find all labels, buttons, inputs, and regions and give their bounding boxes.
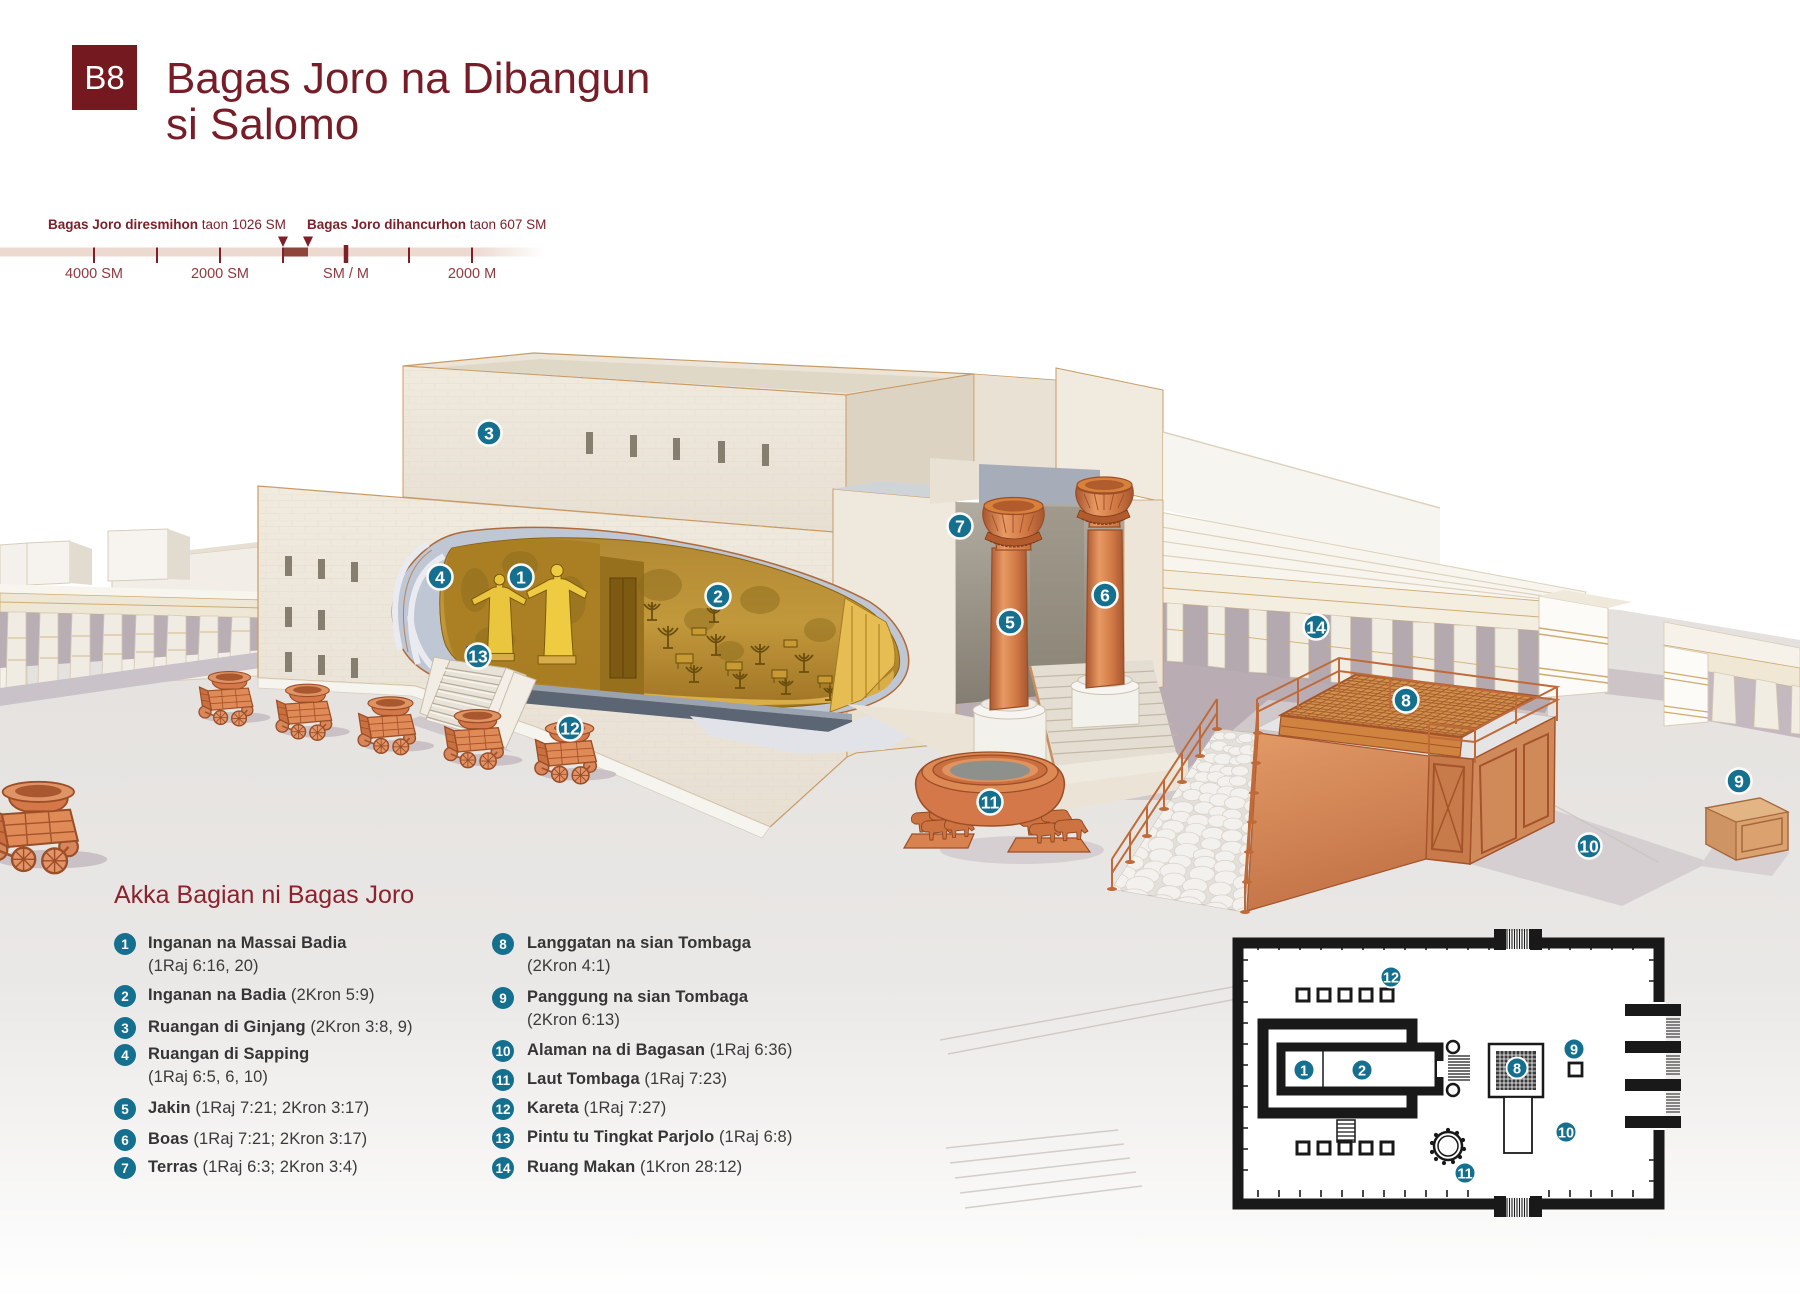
svg-text:1: 1 — [1300, 1064, 1308, 1080]
svg-text:4: 4 — [435, 568, 445, 588]
svg-text:12: 12 — [560, 719, 580, 739]
svg-text:8: 8 — [1401, 691, 1411, 711]
svg-text:1: 1 — [516, 568, 526, 588]
svg-text:9: 9 — [1570, 1043, 1578, 1059]
svg-text:13: 13 — [468, 647, 488, 667]
svg-text:9: 9 — [1734, 772, 1744, 792]
svg-text:10: 10 — [1579, 837, 1599, 857]
svg-text:10: 10 — [1558, 1126, 1574, 1142]
svg-text:2: 2 — [713, 587, 723, 607]
svg-text:2: 2 — [1358, 1064, 1366, 1080]
svg-text:14: 14 — [1306, 618, 1326, 638]
svg-text:11: 11 — [1457, 1167, 1472, 1183]
svg-text:3: 3 — [484, 424, 494, 444]
svg-text:7: 7 — [955, 517, 965, 537]
svg-text:8: 8 — [1513, 1062, 1521, 1078]
svg-text:11: 11 — [981, 793, 1000, 813]
svg-text:5: 5 — [1005, 613, 1015, 633]
svg-text:12: 12 — [1383, 971, 1399, 987]
svg-text:6: 6 — [1100, 586, 1110, 606]
